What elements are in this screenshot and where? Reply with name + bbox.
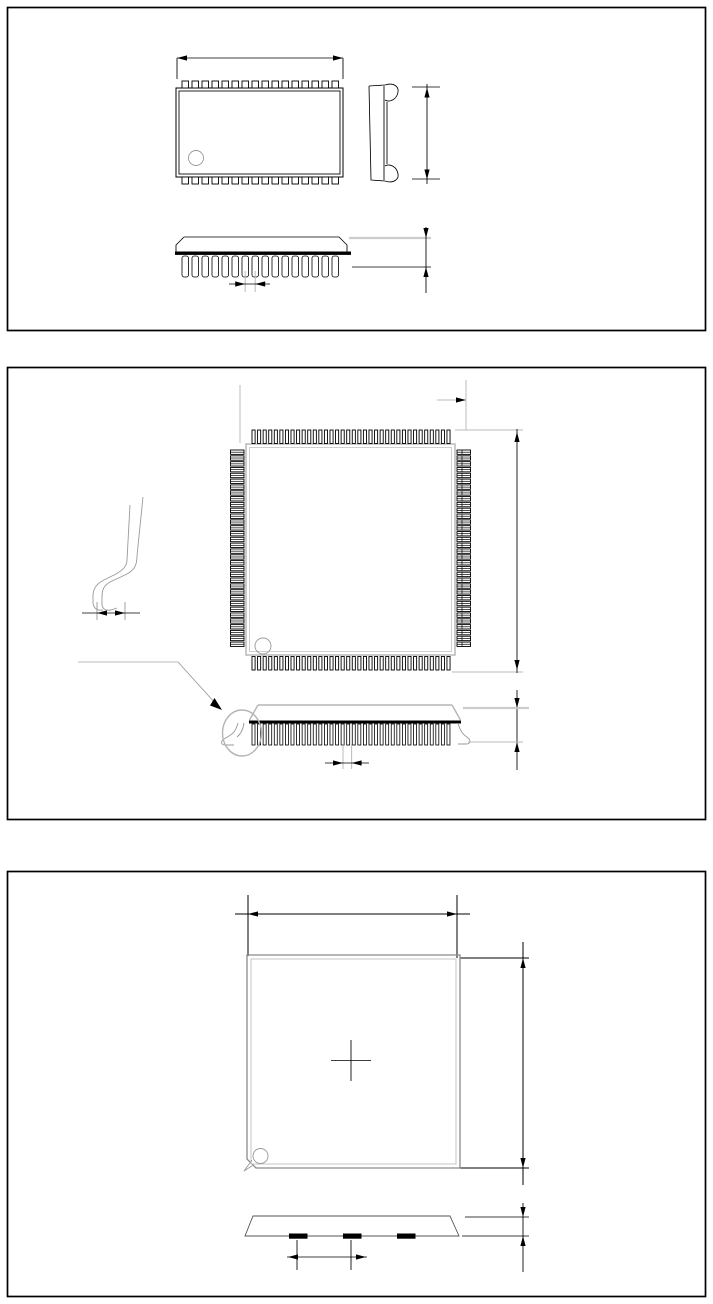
die-pad-pitch-dimension <box>287 1240 367 1270</box>
pin <box>258 430 261 444</box>
arrowhead-down <box>520 1158 525 1168</box>
dimension-line <box>177 58 343 79</box>
qfp-lead-detail <box>82 497 143 620</box>
pin <box>212 81 219 88</box>
arrowhead-right <box>447 911 457 916</box>
pin <box>297 430 300 444</box>
lead-profile-inner <box>93 505 130 610</box>
lead <box>274 724 277 745</box>
lead <box>222 256 229 277</box>
pin <box>397 657 400 671</box>
arrowhead-right <box>333 55 343 60</box>
sop-top-pin-row <box>182 81 339 88</box>
lead <box>202 256 209 277</box>
lead <box>352 724 355 745</box>
pin <box>252 81 259 88</box>
pin <box>202 81 209 88</box>
die-body-inner-outline <box>251 959 456 1164</box>
pin <box>347 430 350 444</box>
qfp-right-pin-column <box>457 450 471 646</box>
lead <box>292 256 299 277</box>
arrowhead-left <box>288 1254 298 1259</box>
pin <box>352 657 355 671</box>
package-body-inner-outline <box>179 91 340 174</box>
pin <box>324 657 327 671</box>
center-cross-marker <box>331 1040 371 1081</box>
pin <box>369 657 372 671</box>
lead <box>369 724 372 745</box>
pin <box>272 81 279 88</box>
sop-top-view <box>176 81 343 184</box>
pin <box>330 430 333 444</box>
pin <box>447 657 450 671</box>
arrowhead-right <box>115 610 125 615</box>
lead <box>402 724 405 745</box>
pin <box>302 177 309 184</box>
pin <box>391 430 394 444</box>
pin <box>447 430 450 444</box>
qfp-top-view <box>231 380 524 673</box>
qfp-package-section <box>78 380 529 770</box>
pin <box>292 177 299 184</box>
pin <box>282 177 289 184</box>
arrowhead-right <box>235 281 245 286</box>
lead <box>408 724 411 745</box>
lead <box>322 256 329 277</box>
die-height-dimension <box>460 942 529 1185</box>
pin <box>322 177 329 184</box>
pin <box>414 657 417 671</box>
pin <box>358 657 361 671</box>
lead <box>313 724 316 745</box>
lead <box>386 724 389 745</box>
pin <box>419 657 422 671</box>
drawing-sheet <box>0 0 713 1304</box>
pin <box>425 430 428 444</box>
dimension-line <box>235 895 470 958</box>
lead <box>182 256 189 277</box>
end-lead-left <box>222 723 244 745</box>
pin <box>380 657 383 671</box>
lead <box>430 724 433 745</box>
end-lead-right <box>458 723 470 744</box>
pin <box>322 81 329 88</box>
pin <box>369 430 372 444</box>
pin <box>262 177 269 184</box>
pin <box>313 430 316 444</box>
arrowhead-down <box>424 170 429 180</box>
pin <box>430 657 433 671</box>
lead-profile-outer <box>102 497 143 610</box>
arrowhead-right <box>456 397 466 402</box>
pin <box>375 430 378 444</box>
pin <box>419 430 422 444</box>
pin <box>280 430 283 444</box>
pin <box>232 81 239 88</box>
pad <box>343 1234 362 1239</box>
pin <box>397 430 400 444</box>
arrowhead-up <box>514 432 519 442</box>
pad <box>289 1234 308 1239</box>
arrowhead-right <box>333 760 343 765</box>
arrowhead-down <box>514 660 519 670</box>
pin <box>258 657 261 671</box>
lead <box>252 724 255 745</box>
die-thickness-dimension <box>462 1203 529 1272</box>
package-outline-drawing <box>0 0 713 1304</box>
pin <box>274 430 277 444</box>
arrowhead-left <box>97 610 107 615</box>
lead <box>232 256 239 277</box>
arrowhead-down <box>423 228 428 238</box>
pin <box>341 657 344 671</box>
pin <box>336 430 339 444</box>
sop-bottom-pin-row <box>182 177 339 184</box>
pin <box>347 657 350 671</box>
arrowhead-up <box>514 742 519 752</box>
pin <box>292 81 299 88</box>
arrowhead-down <box>520 1207 525 1217</box>
lead <box>263 724 266 745</box>
qfp-pin-offset-dimension <box>437 380 466 430</box>
side-body-outline <box>369 85 387 181</box>
pin <box>308 657 311 671</box>
lead <box>285 724 288 745</box>
pin <box>319 657 322 671</box>
pin <box>280 657 283 671</box>
pin <box>222 177 229 184</box>
lead <box>192 256 199 277</box>
extension-lines <box>343 744 352 769</box>
front-body-outline <box>176 237 347 252</box>
pin <box>242 177 249 184</box>
arrowhead-right <box>356 1254 366 1259</box>
pin <box>302 430 305 444</box>
die-side-view <box>245 1203 529 1272</box>
lead <box>336 724 339 745</box>
arrowhead-left <box>248 911 258 916</box>
pin <box>436 657 439 671</box>
pin <box>312 177 319 184</box>
lead <box>363 724 366 745</box>
pin <box>302 81 309 88</box>
pin <box>269 657 272 671</box>
pin <box>252 177 259 184</box>
dimension-line <box>460 942 529 1185</box>
qfp-side-lead-comb <box>252 724 450 745</box>
sop-side-view <box>369 84 440 184</box>
pin <box>425 657 428 671</box>
pin <box>302 657 305 671</box>
j-lead-top <box>385 84 398 101</box>
pin <box>263 657 266 671</box>
lead <box>319 724 322 745</box>
die-top-view <box>244 955 460 1171</box>
die-panel-frame <box>8 872 706 1297</box>
pin <box>242 81 249 88</box>
lead <box>330 724 333 745</box>
qfp-standoff-dimension <box>463 690 529 770</box>
qfp-bottom-pin-row <box>252 657 450 671</box>
pin <box>352 430 355 444</box>
lead <box>414 724 417 745</box>
pin <box>282 81 289 88</box>
pin <box>182 177 189 184</box>
lead <box>282 256 289 277</box>
arrowhead-left <box>177 55 187 60</box>
lead <box>269 724 272 745</box>
pin <box>222 81 229 88</box>
pin <box>192 177 199 184</box>
arrowhead-up <box>424 88 429 98</box>
pin <box>330 657 333 671</box>
sop-height-dimension <box>412 84 440 184</box>
pin <box>386 430 389 444</box>
extension-lines <box>97 602 125 620</box>
pin <box>391 657 394 671</box>
lead <box>447 724 450 745</box>
sop-stand-height-dimension <box>349 227 431 293</box>
pin <box>402 657 405 671</box>
lead <box>272 256 279 277</box>
lead <box>262 256 269 277</box>
pin <box>312 81 319 88</box>
pin <box>308 430 311 444</box>
arrowhead-left <box>352 760 362 765</box>
lead <box>291 724 294 745</box>
lead <box>358 724 361 745</box>
lead <box>308 724 311 745</box>
foot-length-dimension <box>82 602 140 620</box>
pad <box>397 1234 416 1239</box>
lead <box>436 724 439 745</box>
dimension-line <box>287 1240 367 1270</box>
pin <box>386 657 389 671</box>
pin <box>380 430 383 444</box>
pin <box>336 657 339 671</box>
sop-lead-row <box>182 256 339 277</box>
pin <box>408 430 411 444</box>
lead <box>341 724 344 745</box>
pin <box>182 81 189 88</box>
dimension-line <box>462 1203 529 1272</box>
pin <box>263 430 266 444</box>
lead <box>324 724 327 745</box>
arrowhead-left <box>255 281 265 286</box>
leader-line-diagonal <box>178 662 216 704</box>
pin <box>262 81 269 88</box>
pin <box>269 430 272 444</box>
side-body-outline <box>250 705 461 720</box>
sop-width-dimension <box>177 55 343 79</box>
pin <box>272 177 279 184</box>
qfp-panel-frame <box>8 368 706 820</box>
lead <box>375 724 378 745</box>
lead <box>297 724 300 745</box>
die-body-outline <box>247 955 460 1168</box>
pin <box>332 177 339 184</box>
pin <box>430 430 433 444</box>
lead <box>280 724 283 745</box>
pin <box>375 657 378 671</box>
die-outline-section <box>235 895 529 1272</box>
pin <box>252 657 255 671</box>
pin <box>192 81 199 88</box>
lead <box>312 256 319 277</box>
package-body-inner-outline <box>250 448 452 652</box>
pin <box>441 430 444 444</box>
lead <box>397 724 400 745</box>
pin <box>212 177 219 184</box>
pin <box>202 177 209 184</box>
pin <box>274 657 277 671</box>
pin <box>252 430 255 444</box>
arrowhead-up <box>423 267 428 277</box>
pin <box>291 657 294 671</box>
pin <box>363 430 366 444</box>
corner-chamfer-notch <box>244 1160 253 1171</box>
lead <box>212 256 219 277</box>
lead <box>302 256 309 277</box>
qfp-side-view <box>78 662 529 770</box>
pin <box>291 430 294 444</box>
lead <box>441 724 444 745</box>
pin <box>285 430 288 444</box>
pin <box>363 657 366 671</box>
detail-circle <box>223 710 262 756</box>
pin <box>232 177 239 184</box>
pin <box>402 430 405 444</box>
lead <box>391 724 394 745</box>
j-lead-bottom <box>385 165 398 182</box>
pin <box>332 81 339 88</box>
arrowhead-up <box>520 958 525 968</box>
pin <box>358 430 361 444</box>
pin <box>408 657 411 671</box>
lead <box>332 256 339 277</box>
dimension-line <box>412 84 440 184</box>
pin1-marker-circle <box>253 1149 268 1164</box>
pin <box>436 430 439 444</box>
package-body-outline <box>246 444 455 655</box>
pin <box>319 430 322 444</box>
die-width-dimension <box>235 895 470 958</box>
seating-plane-line <box>175 252 351 255</box>
side-body-outline <box>245 1216 459 1236</box>
pin <box>285 657 288 671</box>
pin <box>441 657 444 671</box>
sop-package-section <box>175 55 440 293</box>
qfp-pitch-dimension <box>325 744 369 769</box>
pin1-marker-circle <box>189 151 204 166</box>
lead <box>380 724 383 745</box>
qfp-top-pin-row <box>252 430 450 444</box>
sop-front-view <box>175 227 431 293</box>
arrowhead-up <box>520 1236 525 1246</box>
lead <box>419 724 422 745</box>
lead <box>425 724 428 745</box>
pin <box>341 430 344 444</box>
arrowhead-down <box>514 698 519 708</box>
pin <box>313 657 316 671</box>
pin <box>297 657 300 671</box>
pin <box>324 430 327 444</box>
qfp-left-pin-column <box>231 450 245 646</box>
lead <box>302 724 305 745</box>
lead <box>347 724 350 745</box>
seating-line <box>249 721 461 724</box>
sop-panel-frame <box>8 8 706 331</box>
pin <box>414 430 417 444</box>
